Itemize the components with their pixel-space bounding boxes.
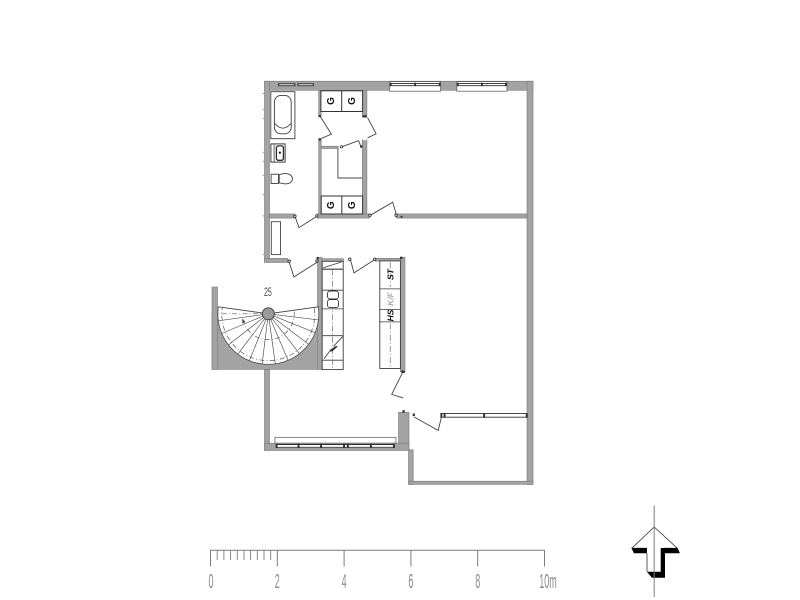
svg-text:G: G <box>347 201 358 209</box>
svg-text:G: G <box>347 97 358 105</box>
svg-text:ST: ST <box>385 268 395 280</box>
svg-text:6: 6 <box>408 571 413 593</box>
svg-text:10m: 10m <box>539 571 557 593</box>
svg-text:4: 4 <box>342 571 347 593</box>
svg-text:8: 8 <box>475 571 480 593</box>
svg-text:G: G <box>326 201 337 209</box>
svg-text:0: 0 <box>208 571 213 593</box>
svg-text:2: 2 <box>275 571 280 593</box>
svg-text:25: 25 <box>264 287 272 300</box>
svg-text:K/F: K/F <box>385 291 395 306</box>
svg-text:G: G <box>326 97 337 105</box>
svg-text:HS: HS <box>385 309 395 321</box>
